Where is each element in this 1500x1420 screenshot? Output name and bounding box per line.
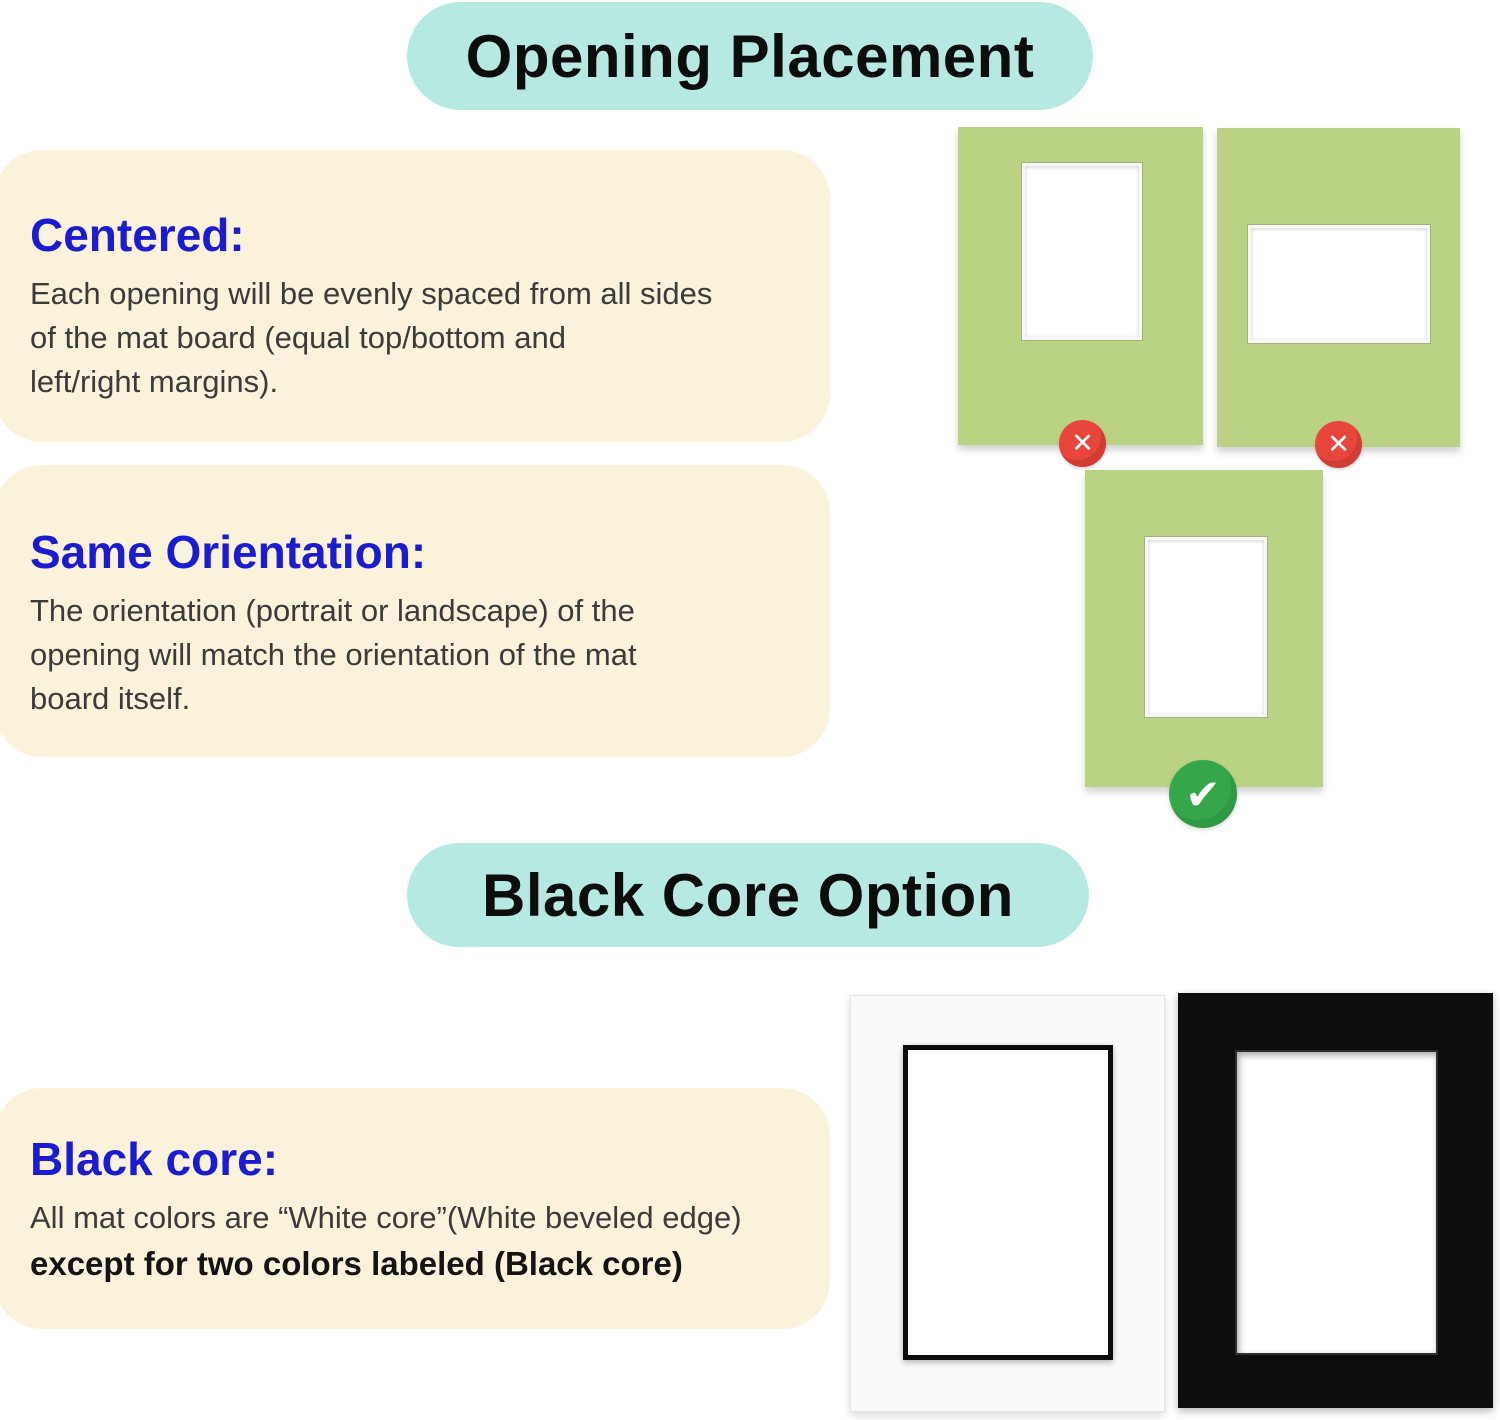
card-centered-heading: Centered: bbox=[30, 208, 810, 262]
mat-opening-portrait-high bbox=[1022, 163, 1142, 340]
white-core-opening bbox=[1235, 1050, 1438, 1355]
card-same-orientation-body-line: The orientation (portrait or landscape) … bbox=[30, 589, 810, 633]
x-glyph: ✕ bbox=[1327, 429, 1350, 460]
card-centered-body-line: Each opening will be evenly spaced from … bbox=[30, 272, 810, 316]
card-centered-body-line: left/right margins). bbox=[30, 360, 810, 404]
check-glyph: ✔ bbox=[1185, 770, 1220, 819]
x-icon: ✕ bbox=[1059, 420, 1106, 467]
card-black-core: Black core: All mat colors are “White co… bbox=[0, 1088, 830, 1329]
section-header-black-core-option: Black Core Option bbox=[407, 843, 1089, 947]
card-same-orientation-body-line: opening will match the orientation of th… bbox=[30, 633, 810, 677]
card-same-orientation-heading: Same Orientation: bbox=[30, 525, 810, 579]
card-centered-body-line: of the mat board (equal top/bottom and bbox=[30, 316, 810, 360]
black-mat-white-core bbox=[1178, 993, 1493, 1408]
white-mat-black-core bbox=[850, 995, 1165, 1412]
mat-opening-landscape bbox=[1248, 225, 1430, 343]
mat-board-centered-opening bbox=[1085, 470, 1323, 787]
x-icon: ✕ bbox=[1315, 421, 1362, 468]
mat-board-portrait-opening-high bbox=[958, 127, 1203, 445]
card-centered: Centered: Each opening will be evenly sp… bbox=[0, 150, 830, 442]
black-core-opening bbox=[903, 1045, 1113, 1360]
mat-board-infographic: Opening Placement Centered: Each opening… bbox=[0, 0, 1500, 1420]
mat-opening-centered bbox=[1145, 537, 1267, 717]
card-black-core-body-line: All mat colors are “White core”(White be… bbox=[30, 1196, 810, 1240]
card-same-orientation-body-line: board itself. bbox=[30, 677, 810, 721]
section-header-opening-placement: Opening Placement bbox=[407, 2, 1093, 110]
card-same-orientation: Same Orientation: The orientation (portr… bbox=[0, 465, 830, 757]
card-black-core-body-line-bold: except for two colors labeled (Black cor… bbox=[30, 1240, 810, 1288]
mat-board-landscape-opening bbox=[1217, 128, 1460, 447]
card-black-core-heading: Black core: bbox=[30, 1132, 810, 1186]
x-glyph: ✕ bbox=[1071, 428, 1094, 459]
check-icon: ✔ bbox=[1169, 760, 1237, 828]
